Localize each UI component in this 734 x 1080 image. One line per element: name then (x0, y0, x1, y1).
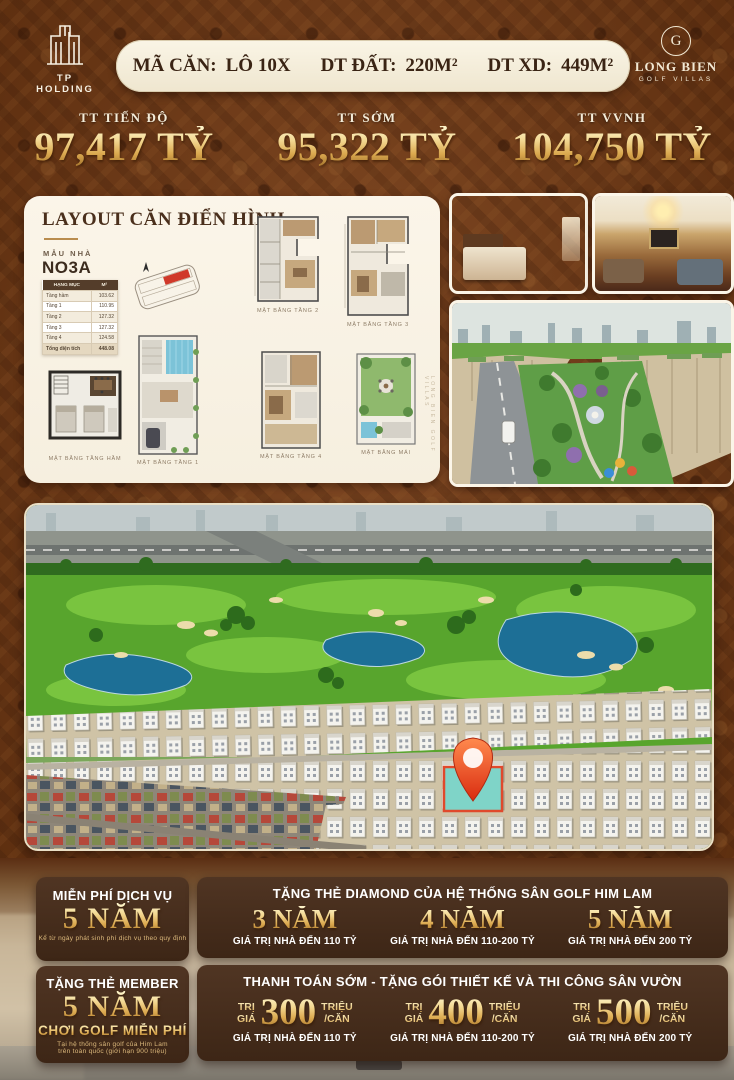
promo-title: MIỄN PHÍ DỊCH VỤ (36, 888, 189, 903)
table-row: Tầng hầm103.62 (43, 291, 118, 302)
unit-code-label: MÃ CĂN: (133, 55, 217, 77)
diamond-tier-3y: 3 NĂM GIÁ TRỊ NHÀ ĐẾN 110 TỶ (211, 906, 379, 947)
table-row: Tầng 1110.95 (43, 301, 118, 312)
price-progress: TT TIẾN ĐỘ 97,417 TỶ (18, 110, 230, 184)
longbien-name: LONG BIEN (630, 59, 722, 75)
area-table: HẠNG MỤC M² Tầng hầm103.62 Tầng 1110.95 … (42, 280, 118, 355)
land-area-value: 220M² (405, 55, 457, 77)
interior-photo-bedroom (449, 193, 588, 294)
tv-wall (649, 228, 679, 249)
payment-tier-400: TRỊGIÁ 400 TRIỆU/CĂN GIÁ TRỊ NHÀ ĐẾN 110… (379, 995, 547, 1044)
promo-diamond-card: TẶNG THẺ DIAMOND CỦA HỆ THỐNG SÂN GOLF H… (197, 877, 728, 958)
floorplan-basement: MẶT BẰNG TẦNG HẦM (46, 368, 124, 449)
tp-holding-logo: TP HOLDING (26, 20, 104, 96)
price-loan-value: 104,750 TỶ (498, 126, 726, 168)
price-progress-value: 97,417 TỶ (18, 126, 230, 168)
diamond-tier-5y: 5 NĂM GIÁ TRỊ NHÀ ĐẾN 200 TỶ (546, 906, 714, 947)
floorplan-roof: MẶT BẰNG MÁI (352, 350, 420, 453)
monogram-icon: G (661, 26, 691, 56)
promo-member-card: TẶNG THẺ MEMBER 5 NĂM CHƠI GOLF MIỄN PHÍ… (36, 966, 189, 1063)
longbien-golf-villas-logo: G LONG BIEN GOLF VILLAS (630, 26, 722, 92)
panel-watermark: LONG BIEN GOLF VILLAS (423, 376, 435, 483)
site-plan-map (128, 254, 206, 323)
window (562, 217, 579, 261)
area-col-category: HẠNG MỤC (43, 280, 92, 291)
floorplan-floor3: MẶT BẰNG TẦNG 3 (343, 212, 413, 325)
promo-title: TẶNG THẺ DIAMOND CỦA HỆ THỐNG SÂN GOLF H… (197, 886, 728, 901)
building-icon (43, 53, 87, 70)
price-early: TT SỚM 95,322 TỶ (260, 110, 474, 184)
sofa (677, 259, 723, 286)
table-total-row: Tổng diện tích448.08 (43, 343, 118, 354)
land-area-label: DT ĐẤT: (321, 55, 397, 77)
sofa (603, 259, 644, 284)
promo-title: TẶNG THẺ MEMBER (36, 976, 189, 991)
tp-holding-name: TP HOLDING (26, 73, 104, 95)
model-name: NO3A (42, 258, 91, 278)
north-arrow-icon (143, 262, 149, 272)
build-area-value: 449M² (561, 55, 613, 77)
poster: TP HOLDING MÃ CĂN: LÔ 10X DT ĐẤT: 220M² … (0, 0, 734, 1080)
price-loan: TT VVNH 104,750 TỶ (498, 110, 726, 184)
floorplan-floor1: MẶT BẰNG TẦNG 1 (134, 332, 202, 463)
bed (463, 247, 527, 279)
unit-info-bar: MÃ CĂN: LÔ 10X DT ĐẤT: 220M² DT XD: 449M… (116, 40, 630, 92)
table-row: Tầng 3127.32 (43, 322, 118, 333)
promo-note: Kể từ ngày phát sinh phí dịch vụ theo qu… (36, 935, 189, 942)
area-col-m2: M² (91, 280, 117, 291)
model-label: MẪU NHÀ (43, 249, 92, 258)
layout-panel-title: LAYOUT CĂN ĐIỂN HÌNH (42, 209, 285, 231)
promo-note: Tại hệ thống sân golf của Him Lam (36, 1041, 189, 1048)
price-early-value: 95,322 TỶ (260, 126, 474, 168)
payment-tier-300: TRỊGIÁ 300 TRIỆU/CĂN GIÁ TRỊ NHÀ ĐẾN 110… (211, 995, 379, 1044)
promo-subtitle: CHƠI GOLF MIỄN PHÍ (36, 1023, 189, 1038)
payment-tier-500: TRỊGIÁ 500 TRIỆU/CĂN GIÁ TRỊ NHÀ ĐẾN 200… (546, 995, 714, 1044)
promo-note: trên toàn quốc (giới hạn 900 triệu) (36, 1048, 189, 1055)
promo-title: THANH TOÁN SỚM - TẶNG GÓI THIẾT KẾ VÀ TH… (197, 974, 728, 989)
table-row: Tầng 2127.32 (43, 312, 118, 323)
floorplan-floor2: MẶT BẰNG TẦNG 2 (253, 212, 323, 311)
promo-early-payment: THANH TOÁN SỚM - TẶNG GÓI THIẾT KẾ VÀ TH… (197, 965, 728, 1061)
title-underline (44, 238, 78, 240)
aerial-masterplan-photo (24, 503, 714, 851)
diamond-tier-4y: 4 NĂM GIÁ TRỊ NHÀ ĐẾN 110-200 TỶ (379, 906, 547, 947)
street-render-photo (449, 300, 734, 487)
promo-service-free: MIỄN PHÍ DỊCH VỤ 5 NĂM Kể từ ngày phát s… (36, 877, 189, 961)
layout-panel: LAYOUT CĂN ĐIỂN HÌNH MẪU NHÀ NO3A HẠNG M… (24, 196, 440, 483)
unit-code-value: LÔ 10X (226, 55, 291, 77)
longbien-sub: GOLF VILLAS (630, 76, 722, 83)
build-area-label: DT XD: (488, 55, 553, 77)
floorplan-floor4: MẶT BẰNG TẦNG 4 (257, 348, 325, 457)
promo-term: 5 NĂM (36, 903, 189, 935)
interior-photo-livingroom (592, 193, 734, 294)
table-row: Tầng 4124.58 (43, 333, 118, 344)
promo-term: 5 NĂM (36, 991, 189, 1023)
